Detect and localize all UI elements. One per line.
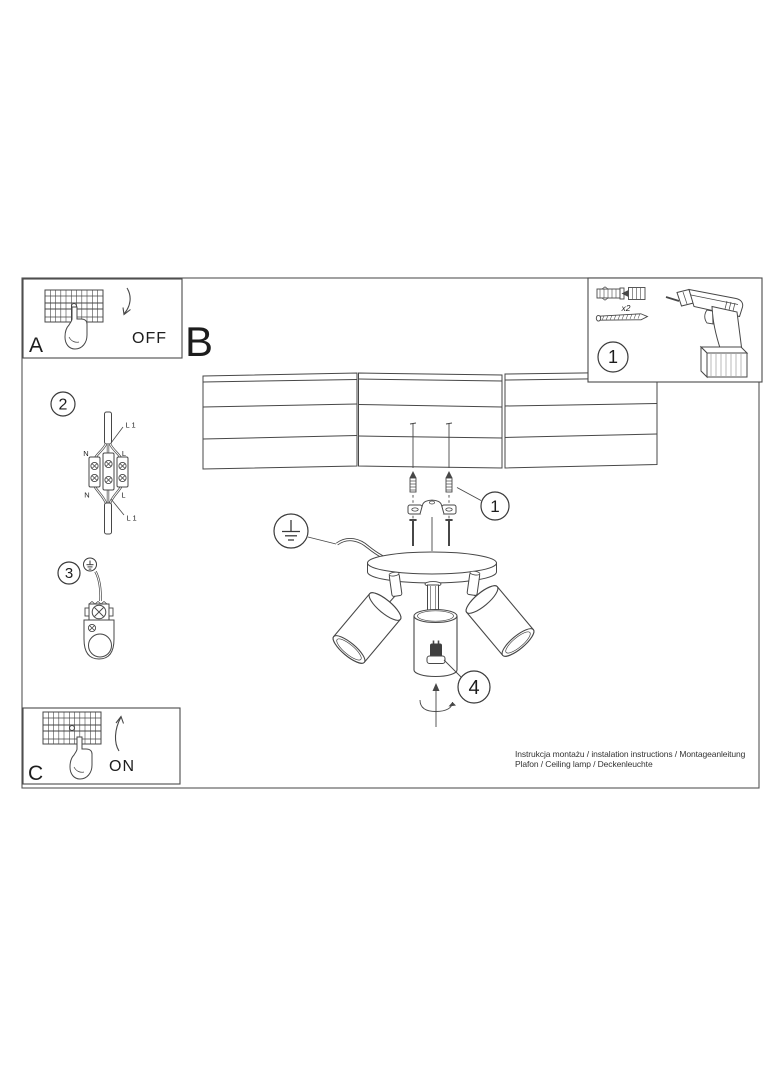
callout-screws-number: 1: [490, 497, 499, 516]
callout-grounding-number: 3: [65, 565, 73, 582]
section-b-label: B: [185, 318, 213, 365]
anchor-qty-label: x2: [621, 303, 631, 313]
section-c-label: C: [28, 762, 43, 785]
ground-symbol: [274, 514, 336, 548]
instruction-sheet: 1: [0, 0, 784, 1066]
wire-label-l1-top: L 1: [126, 421, 136, 430]
section-a-label: A: [29, 334, 43, 357]
ground-cable: [337, 540, 383, 557]
footer-caption: Instrukcja montażu / instalation instruc…: [515, 749, 765, 770]
box-breaker-off: OFF A: [23, 279, 182, 358]
box-breaker-on: ON C: [23, 708, 180, 785]
canopy-screws: [409, 517, 452, 551]
wire-label-n-top: N: [83, 449, 88, 458]
footer-line2: Plafon / Ceiling lamp / Deckenleuchte: [515, 759, 765, 769]
left-spotlight: [330, 589, 405, 668]
power-on-label: ON: [109, 758, 135, 775]
callout-bulb: 4: [444, 660, 490, 703]
callout-wiring-number: 2: [59, 397, 68, 414]
wire-label-l1-bottom: L 1: [127, 514, 137, 523]
power-off-label: OFF: [132, 330, 167, 347]
callout-bulb-number: 4: [468, 677, 479, 699]
grounding-diagram: 3: [58, 558, 114, 659]
rotation-arrow: [420, 683, 456, 727]
diagram-canvas: 1: [0, 0, 784, 1066]
wall-anchor: [597, 287, 645, 300]
wiring-diagram: 2 L 1 N L N L L 1: [51, 392, 137, 534]
wire-label-l-bottom: L: [121, 491, 125, 500]
box-tools: x2: [588, 278, 762, 382]
ceiling-boards: [203, 372, 657, 469]
callout-tools-number: 1: [608, 347, 618, 367]
footer-line1: Instrukcja montażu / instalation instruc…: [515, 749, 765, 759]
wire-label-n-bottom: N: [84, 491, 89, 500]
wire-label-l-top: L: [122, 449, 126, 458]
callout-screws: 1: [457, 488, 509, 521]
